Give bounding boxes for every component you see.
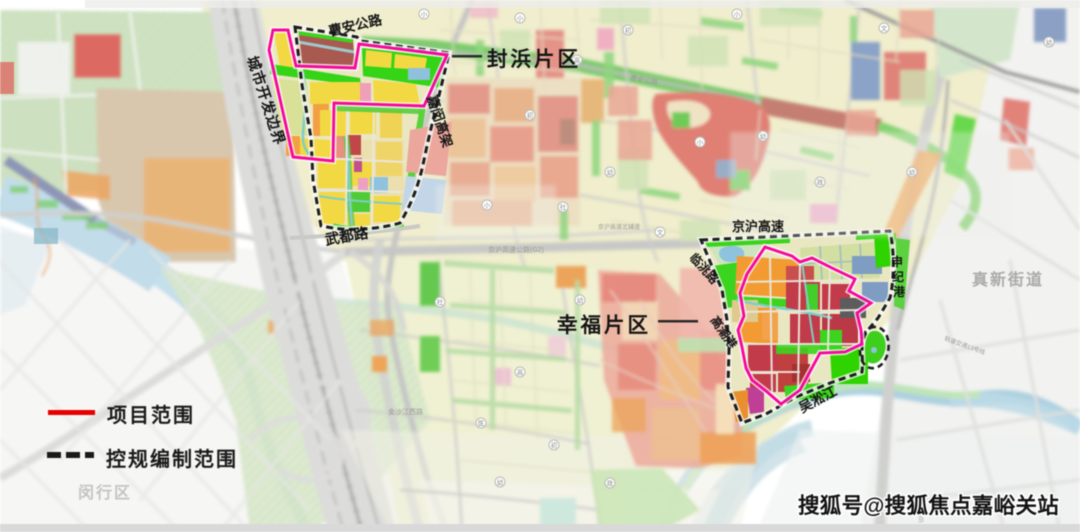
svg-text:初: 初 [527, 111, 534, 120]
svg-text:小: 小 [421, 10, 428, 19]
svg-text:幸福片区: 幸福片区 [557, 314, 651, 337]
svg-text:小: 小 [734, 10, 741, 19]
svg-text:搜狐号@搜狐焦点嘉峪关站: 搜狐号@搜狐焦点嘉峪关站 [798, 493, 1059, 518]
svg-text:社: 社 [560, 203, 567, 212]
svg-text:项目范围: 项目范围 [107, 403, 195, 427]
svg-text:文: 文 [657, 228, 664, 237]
svg-text:幼: 幼 [497, 478, 504, 487]
svg-text:高: 高 [517, 368, 524, 377]
svg-text:社: 社 [437, 298, 444, 307]
svg-text:小: 小 [517, 14, 524, 23]
svg-text:幼: 幼 [607, 168, 614, 177]
svg-text:初: 初 [551, 441, 558, 450]
svg-text:京沪高速北辅道: 京沪高速北辅道 [598, 223, 640, 231]
svg-text:幼: 幼 [909, 168, 916, 177]
svg-text:幼: 幼 [1046, 38, 1053, 47]
svg-text:初: 初 [625, 26, 632, 35]
svg-text:金沙江西路: 金沙江西路 [388, 407, 423, 416]
svg-text:政: 政 [817, 178, 824, 187]
svg-text:申: 申 [891, 254, 903, 269]
svg-text:京沪高速: 京沪高速 [732, 219, 784, 234]
svg-text:幼: 幼 [577, 296, 584, 305]
svg-text:小: 小 [484, 201, 491, 210]
svg-text:小: 小 [697, 138, 704, 147]
svg-text:闵行区: 闵行区 [78, 483, 132, 502]
svg-text:京沪高速公路(G2): 京沪高速公路(G2) [488, 245, 544, 254]
svg-text:医: 医 [478, 420, 485, 428]
svg-text:控规编制范围: 控规编制范围 [106, 447, 238, 471]
svg-text:港: 港 [893, 284, 906, 299]
svg-text:真新街道: 真新街道 [972, 270, 1044, 289]
svg-text:封浜片区: 封浜片区 [487, 47, 581, 71]
svg-text:幼: 幼 [760, 132, 767, 141]
svg-text:政: 政 [607, 479, 614, 488]
svg-text:纪: 纪 [892, 269, 904, 284]
svg-text:文: 文 [881, 24, 888, 33]
